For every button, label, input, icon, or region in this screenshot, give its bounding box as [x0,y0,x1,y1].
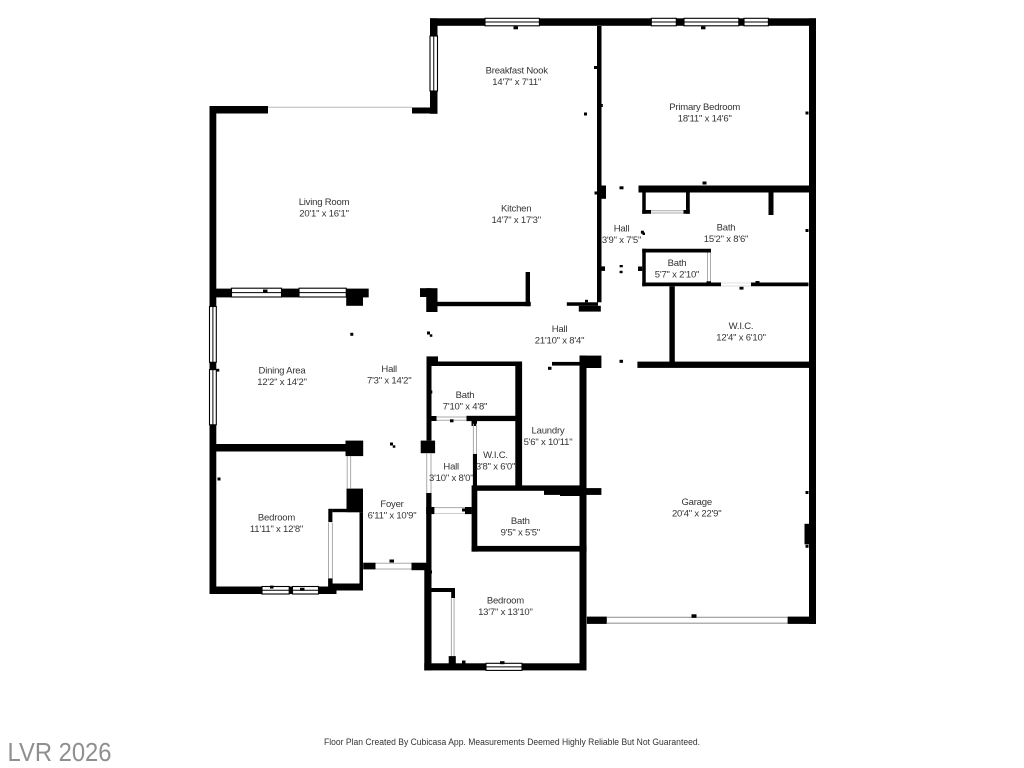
svg-text:5'7" x 2'10": 5'7" x 2'10" [655,270,699,281]
svg-text:7'3" x 14'2": 7'3" x 14'2" [367,376,411,387]
svg-text:Kitchen: Kitchen [501,204,531,215]
svg-text:Laundry: Laundry [532,426,565,437]
svg-text:Bath: Bath [717,223,736,234]
svg-text:20'1" x 16'1": 20'1" x 16'1" [299,209,349,220]
svg-text:12'2" x 14'2": 12'2" x 14'2" [257,377,307,388]
svg-text:LVR 2026: LVR 2026 [8,763,112,768]
svg-text:Breakfast Nook: Breakfast Nook [486,66,549,77]
svg-text:3'9" x 7'5": 3'9" x 7'5" [602,235,641,246]
svg-text:11'11" x 12'8": 11'11" x 12'8" [250,524,303,535]
svg-text:13'7" x 13'10": 13'7" x 13'10" [478,607,533,618]
svg-text:Garage: Garage [681,497,712,508]
svg-text:Hall: Hall [614,224,630,235]
svg-text:Floor Plan Created By Cubicasa: Floor Plan Created By Cubicasa App. Meas… [324,737,700,747]
svg-text:Hall: Hall [552,324,568,335]
svg-text:18'11" x 14'6": 18'11" x 14'6" [678,114,732,125]
svg-text:3'8" x 6'0": 3'8" x 6'0" [476,462,515,473]
svg-text:Living Room: Living Room [299,197,350,208]
svg-text:14'7" x 7'11": 14'7" x 7'11" [492,77,541,88]
svg-text:Primary Bedroom: Primary Bedroom [669,102,740,113]
svg-text:Hall: Hall [381,364,397,375]
svg-text:Bath: Bath [511,516,530,527]
svg-text:Dining Area: Dining Area [259,366,307,377]
svg-text:20'4" x 22'9": 20'4" x 22'9" [672,509,722,520]
svg-text:Bedroom: Bedroom [258,513,295,524]
svg-text:Foyer: Foyer [380,499,403,510]
svg-text:Hall: Hall [443,462,459,473]
svg-text:6'11" x 10'9": 6'11" x 10'9" [368,511,417,522]
svg-text:Bedroom: Bedroom [487,595,524,606]
svg-text:W.I.C.: W.I.C. [483,450,508,461]
svg-text:9'5" x 5'5": 9'5" x 5'5" [501,528,540,539]
svg-text:Bath: Bath [456,390,475,401]
svg-text:W.I.C.: W.I.C. [729,321,754,332]
svg-text:3'10" x 8'0": 3'10" x 8'0" [429,473,473,484]
svg-text:Bath: Bath [668,258,687,269]
svg-text:21'10" x 8'4": 21'10" x 8'4" [535,336,585,347]
svg-text:15'2" x 8'6": 15'2" x 8'6" [704,234,748,245]
svg-text:14'7" x 17'3": 14'7" x 17'3" [491,215,541,226]
svg-text:12'4" x 6'10": 12'4" x 6'10" [716,333,766,344]
svg-text:5'6" x 10'11": 5'6" x 10'11" [524,437,573,448]
svg-text:7'10" x 4'8": 7'10" x 4'8" [443,402,487,413]
